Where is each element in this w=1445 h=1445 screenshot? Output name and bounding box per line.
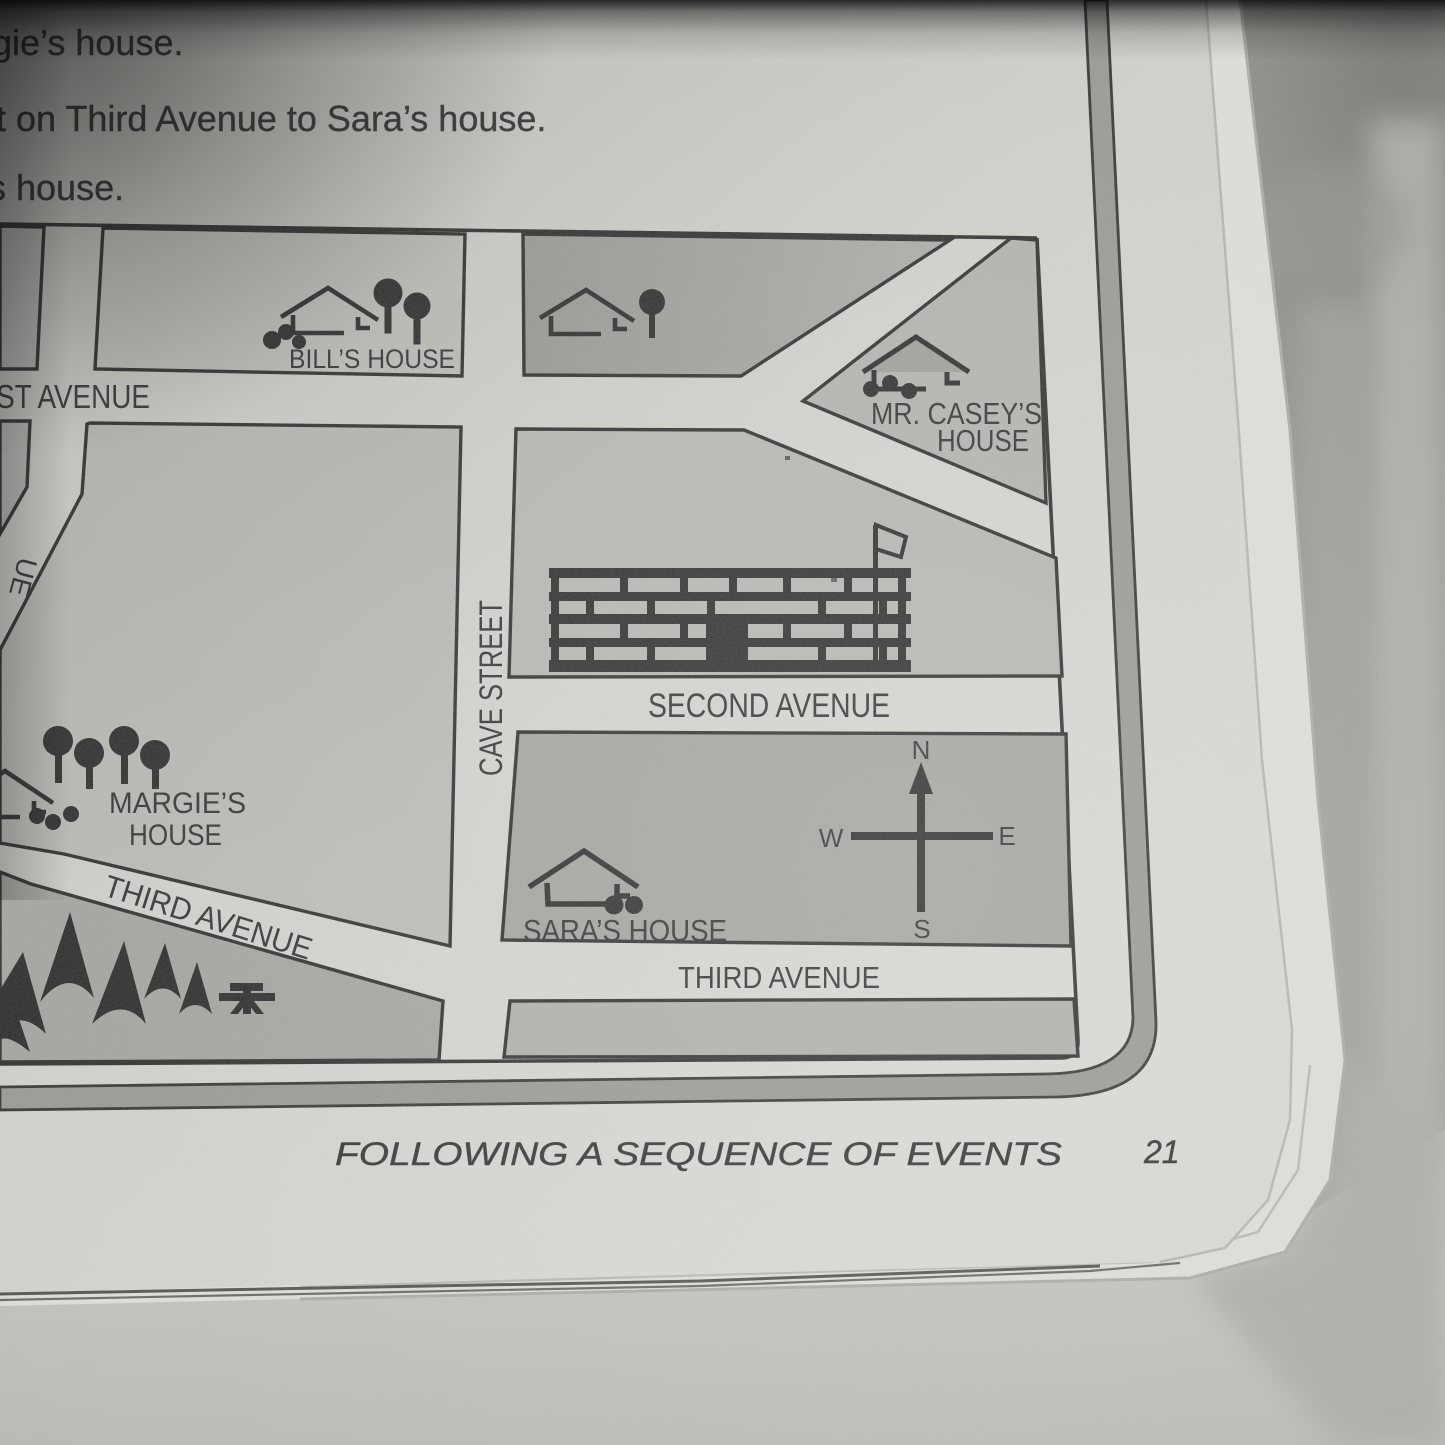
svg-text:HOUSE: HOUSE: [129, 819, 222, 852]
svg-text:BILL’S HOUSE: BILL’S HOUSE: [289, 344, 455, 374]
svg-text:E: E: [998, 821, 1015, 851]
svg-text:MARGIE’S: MARGIE’S: [109, 787, 246, 820]
svg-text:SECOND AVENUE: SECOND AVENUE: [648, 687, 890, 725]
svg-text:N: N: [912, 735, 931, 765]
svg-text:W: W: [819, 823, 844, 853]
svg-text:RST AVENUE: RST AVENUE: [0, 378, 150, 415]
svg-text:CAVE STREET: CAVE STREET: [473, 600, 509, 776]
svg-text:gie’s house.: gie’s house.: [0, 22, 183, 63]
svg-text:s house.: s house.: [0, 167, 124, 208]
svg-text:THIRD AVENUE: THIRD AVENUE: [678, 960, 880, 995]
svg-text:t on Third Avenue to Sara’s ho: t on Third Avenue to Sara’s house.: [0, 98, 546, 139]
svg-text:SARA’S HOUSE: SARA’S HOUSE: [523, 913, 727, 948]
svg-text:21: 21: [1143, 1134, 1180, 1170]
svg-text:HOUSE: HOUSE: [937, 423, 1029, 458]
svg-text:FOLLOWING A SEQUENCE OF EVENTS: FOLLOWING A SEQUENCE OF EVENTS: [335, 1136, 1062, 1172]
svg-text:S: S: [913, 914, 930, 944]
